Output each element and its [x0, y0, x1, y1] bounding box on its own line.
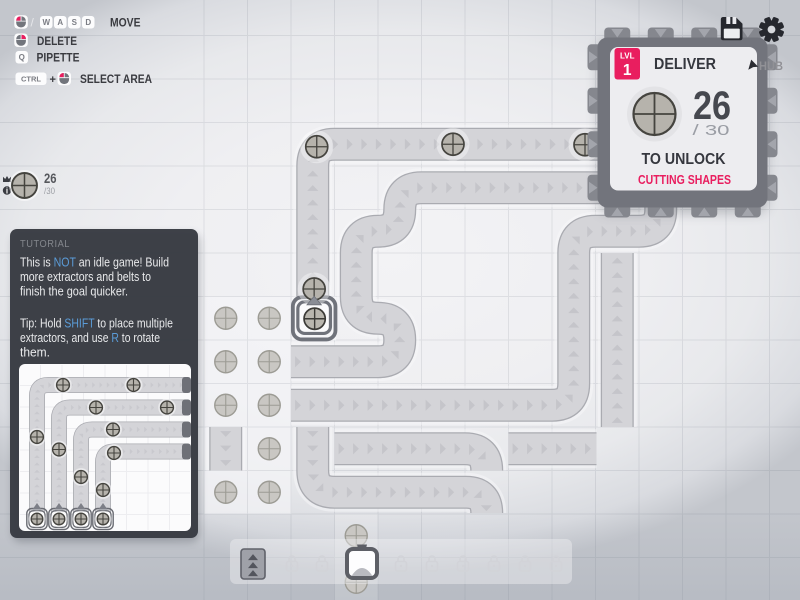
svg-text:more extractors and belts to: more extractors and belts to — [20, 270, 151, 284]
svg-text:TO UNLOCK: TO UNLOCK — [642, 151, 727, 168]
svg-text:finish the goal quicker.: finish the goal quicker. — [20, 285, 128, 299]
svg-text:1: 1 — [623, 62, 632, 79]
svg-text:26: 26 — [693, 84, 731, 128]
svg-text:Q: Q — [19, 53, 25, 62]
svg-text:LVL: LVL — [620, 52, 635, 61]
svg-text:D: D — [85, 18, 91, 27]
svg-text:them.: them. — [20, 346, 50, 360]
svg-text:+: + — [50, 74, 56, 86]
svg-text:i: i — [6, 187, 8, 196]
svg-text:DELIVER: DELIVER — [654, 56, 716, 73]
svg-text:HUB: HUB — [759, 59, 783, 73]
svg-text:/ 30: / 30 — [693, 123, 730, 139]
svg-text:26: 26 — [44, 171, 57, 186]
svg-text:DELETE: DELETE — [37, 34, 77, 48]
svg-text:TUTORIAL: TUTORIAL — [20, 238, 70, 250]
svg-text:CTRL: CTRL — [21, 75, 41, 84]
svg-text:Tip: Hold SHIFT to place multi: Tip: Hold SHIFT to place multiple — [20, 317, 173, 331]
svg-text:A: A — [57, 18, 63, 27]
svg-text:This is NOT an idle game! Buil: This is NOT an idle game! Build — [20, 256, 169, 270]
svg-text:CUTTING SHAPES: CUTTING SHAPES — [638, 172, 731, 187]
svg-text:PIPETTE: PIPETTE — [37, 51, 80, 65]
svg-text:S: S — [72, 18, 78, 27]
svg-text:SELECT AREA: SELECT AREA — [80, 72, 152, 86]
svg-text:extractors, and use R to rotat: extractors, and use R to rotate — [20, 331, 160, 345]
svg-text:/30: /30 — [44, 186, 55, 197]
svg-text:W: W — [42, 18, 50, 27]
svg-text:MOVE: MOVE — [110, 16, 141, 30]
